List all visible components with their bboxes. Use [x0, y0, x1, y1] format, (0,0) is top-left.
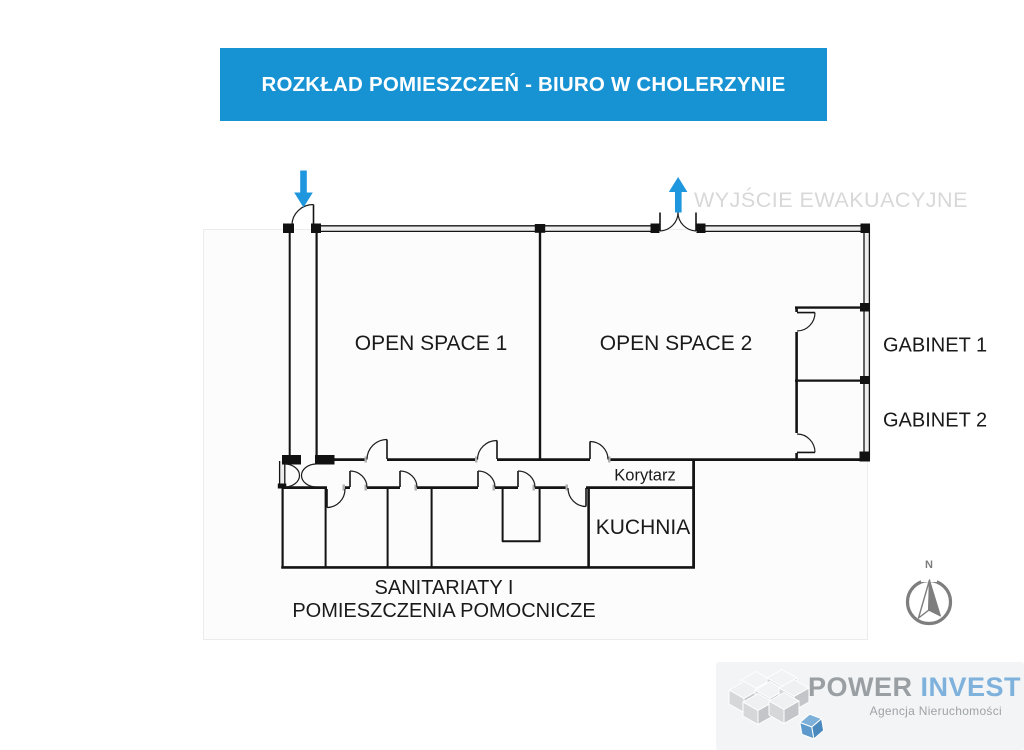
evacuation-exit-label: WYJŚCIE EWAKUACYJNE — [694, 188, 968, 213]
room-label-korytarz: Korytarz — [614, 467, 675, 486]
room-label-open-space-2: OPEN SPACE 2 — [600, 332, 753, 356]
evacuation-arrow-icon — [669, 177, 688, 213]
logo-brand-power: POWER — [808, 672, 913, 702]
interior-walls — [281, 233, 868, 568]
floor-plan-drawing — [0, 0, 1024, 750]
compass-north-letter: N — [925, 559, 933, 571]
compass-icon — [901, 574, 957, 630]
room-label-open-space-1: OPEN SPACE 1 — [355, 332, 508, 356]
sanitariaty-line1: SANITARIATY I — [244, 577, 644, 600]
room-label-kuchnia: KUCHNIA — [596, 516, 691, 540]
wall-jambs — [278, 224, 870, 489]
entrance-arrow-icon — [294, 171, 313, 208]
outer-walls — [280, 226, 870, 487]
room-label-gabinet-1: GABINET 1 — [883, 335, 987, 358]
sanitariaty-line2: POMIESZCZENIA POMOCNICZE — [244, 600, 644, 623]
logo-subtitle: Agencja Nieruchomości — [870, 704, 1002, 718]
logo-brand-text: POWER INVEST — [808, 672, 1021, 703]
wall-cavity-fills — [280, 226, 870, 487]
logo-panel: POWER INVEST Agencja Nieruchomości — [716, 662, 1024, 750]
room-label-sanitariaty: SANITARIATY I POMIESZCZENIA POMOCNICZE — [244, 577, 644, 622]
door-sills — [343, 457, 611, 491]
door-leaves — [314, 205, 816, 508]
logo-brand-invest: INVEST — [921, 672, 1022, 702]
room-label-gabinet-2: GABINET 2 — [883, 410, 987, 433]
